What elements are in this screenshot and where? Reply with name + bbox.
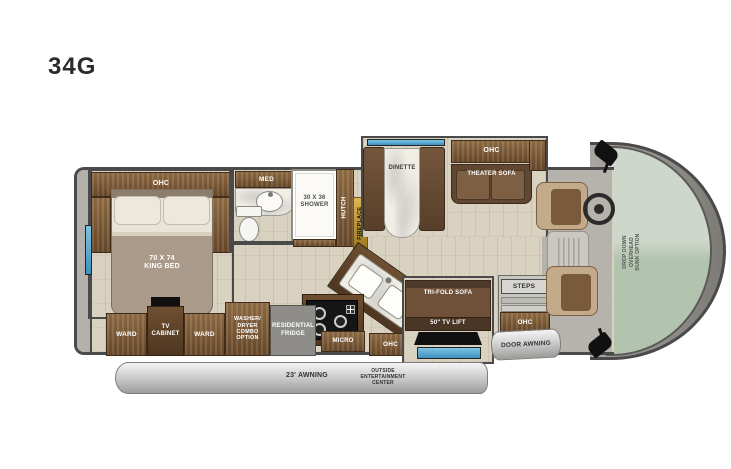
living-ohc-label: OHC — [483, 147, 499, 155]
pillow-left — [114, 196, 161, 225]
overhead-bunk-note: DROP DOWN OVERHEAD BUNK OPTION — [602, 222, 662, 282]
door-awning: DOOR AWNING — [490, 328, 561, 361]
bedroom-tv — [151, 297, 180, 306]
wardrobe-rear: WARD — [106, 313, 147, 356]
slide-front-cabinet — [529, 140, 546, 171]
hutch-cabinet: HUTCH — [336, 169, 354, 247]
residential-fridge: RESIDENTIAL FRIDGE — [270, 305, 316, 356]
entry-steps: STEPS — [501, 279, 547, 294]
pillow-right — [163, 196, 210, 225]
hutch-label: HUTCH — [341, 197, 348, 219]
patio-awning-text: 23' AWNING — [286, 372, 328, 380]
outside-entertainment-text: OUTSIDE ENTERTAINMENT CENTER — [356, 368, 410, 387]
floorplan-canvas: 34G OHC 70 X 74 KING BED MED 30 X 36 SHO… — [0, 0, 731, 469]
bath-faucet — [268, 192, 273, 197]
driver-seat-cushion — [551, 189, 581, 225]
trifold-sofa-label: TRI-FOLD SOFA — [405, 288, 491, 299]
shower-threshold — [293, 239, 336, 247]
toilet-bowl — [239, 217, 259, 242]
dinette-text: DINETTE — [388, 165, 415, 172]
nightstand-rear — [91, 197, 111, 253]
patio-awning-label: 23' AWNING — [267, 370, 347, 382]
microwave-cabinet: MICRO — [321, 331, 365, 352]
shower-size-label: 30 X 36 SHOWER — [293, 195, 336, 209]
washer-dryer-label: WASHER/ DRYER COMBO OPTION — [228, 316, 267, 342]
steering-wheel-hub — [594, 204, 604, 214]
step-tread-1 — [501, 297, 547, 304]
tv-lift-label: 50" TV LIFT — [430, 320, 465, 327]
sink-faucet — [384, 276, 392, 284]
passenger-seat — [546, 266, 598, 316]
passenger-seat-cushion — [561, 274, 591, 311]
toilet-tank — [236, 206, 262, 217]
overhead-bunk-label: DROP DOWN OVERHEAD BUNK OPTION — [622, 229, 642, 275]
dinette-bench-left — [363, 147, 385, 231]
step-tread-2 — [501, 305, 547, 312]
outside-entertainment-label: OUTSIDE ENTERTAINMENT CENTER — [352, 363, 414, 391]
bed-size-label: 70 X 74 — [149, 255, 175, 263]
dinette-bench-right — [419, 147, 445, 231]
kitchen-ohc-label: OHC — [383, 341, 398, 349]
wall-bath-lower — [229, 241, 295, 245]
ward-front-label: WARD — [194, 331, 215, 339]
fridge-label: RESIDENTIAL FRIDGE — [272, 323, 314, 337]
bedroom-ohc-label: OHC — [153, 180, 169, 188]
wardrobe-front: WARD — [184, 313, 225, 356]
driver-seat — [536, 182, 588, 230]
steps-label: STEPS — [513, 283, 535, 291]
steering-wheel — [583, 193, 615, 225]
trifold-sofa — [405, 280, 491, 318]
tv-cabinet: TV CABINET — [147, 306, 184, 356]
shower-label: 30 X 36 SHOWER — [293, 188, 336, 216]
tv-lift-bar: 50" TV LIFT — [405, 317, 491, 331]
micro-label: MICRO — [333, 338, 354, 345]
page-title: 34G — [48, 52, 118, 82]
dinette-window — [367, 139, 445, 146]
bed-type-label: KING BED — [144, 263, 180, 271]
cab-console-text-marks — [558, 238, 580, 269]
theater-sofa-label: THEATER SOFA — [451, 169, 532, 181]
entry-ohc-label: OHC — [517, 319, 532, 327]
medicine-cabinet: MED — [235, 171, 298, 188]
ward-rear-label: WARD — [116, 331, 137, 339]
king-bed-label: 70 X 74 KING BED — [111, 248, 213, 278]
tv-cabinet-label: TV CABINET — [148, 324, 183, 338]
dinette-table — [384, 148, 420, 238]
med-label: MED — [259, 176, 274, 184]
bedroom-window — [85, 225, 92, 275]
cooktop-plus-icon — [346, 305, 355, 314]
door-awning-label: DOOR AWNING — [501, 339, 551, 349]
trifold-window — [417, 347, 481, 359]
washer-dryer-cabinet: WASHER/ DRYER COMBO OPTION — [225, 302, 270, 356]
trifold-sofa-text: TRI-FOLD SOFA — [424, 290, 473, 297]
living-overhead-cabinet: OHC — [451, 140, 532, 163]
dinette-label: DINETTE — [381, 164, 423, 174]
burner-3 — [334, 315, 347, 328]
lift-tv — [414, 332, 482, 345]
theater-sofa-text: THEATER SOFA — [467, 171, 515, 178]
